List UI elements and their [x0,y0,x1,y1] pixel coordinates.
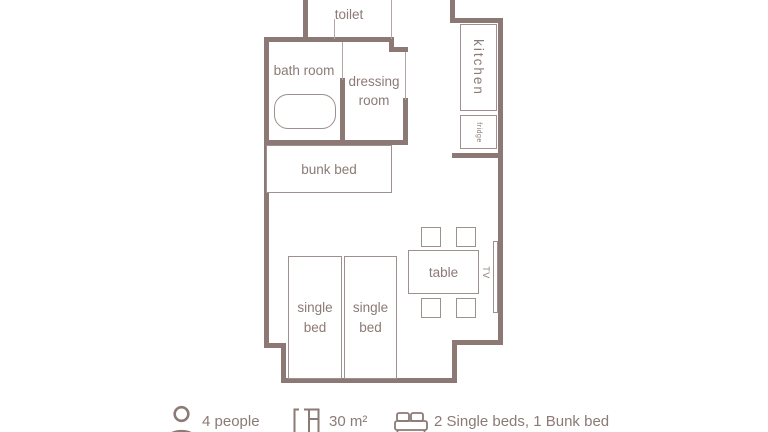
wall-segment [498,18,503,345]
area-label: 30 m² [329,413,367,431]
wall-segment [452,340,503,345]
furniture-label-single-bed: single bed [293,298,337,338]
bed-icon [394,411,428,432]
single-bed-right: single bed [344,256,397,379]
room-label-dressing-room: dressing room [343,72,405,110]
wall-segment [450,18,503,23]
wall-segment [264,37,394,42]
room-label-fridge: fridge [469,122,488,143]
chair [456,298,476,318]
capacity-label: 4 people [202,413,260,431]
door-opening [405,52,406,100]
furniture-label-table: table [429,263,458,282]
bathtub [274,94,336,129]
wall-segment [450,0,455,23]
single-bed-left: single bed [288,256,342,379]
wall-segment [452,153,503,158]
beds-label: 2 Single beds, 1 Bunk bed [434,413,609,431]
floor-plan: toilet bath room dressing room kitchen f… [0,0,768,432]
person-icon [163,403,200,432]
room-label-bath-room: bath room [266,61,342,80]
chair [421,227,441,247]
chair [421,298,441,318]
door-opening [391,0,392,39]
furniture-label-tv: TV [478,265,492,279]
floorplan-icon [293,408,320,432]
furniture-label-bunk-bed: bunk bed [301,160,357,179]
kitchen-counter: kitchen [460,24,497,111]
bunk-bed: bunk bed [266,145,392,193]
wall-segment [452,340,457,383]
room-label-kitchen: kitchen [469,39,488,96]
wall-segment [281,343,286,383]
furniture-label-single-bed: single bed [349,298,393,338]
chair [456,227,476,247]
fridge: fridge [460,115,497,149]
room-label-toilet: toilet [308,5,390,24]
dining-table: table [408,250,479,294]
